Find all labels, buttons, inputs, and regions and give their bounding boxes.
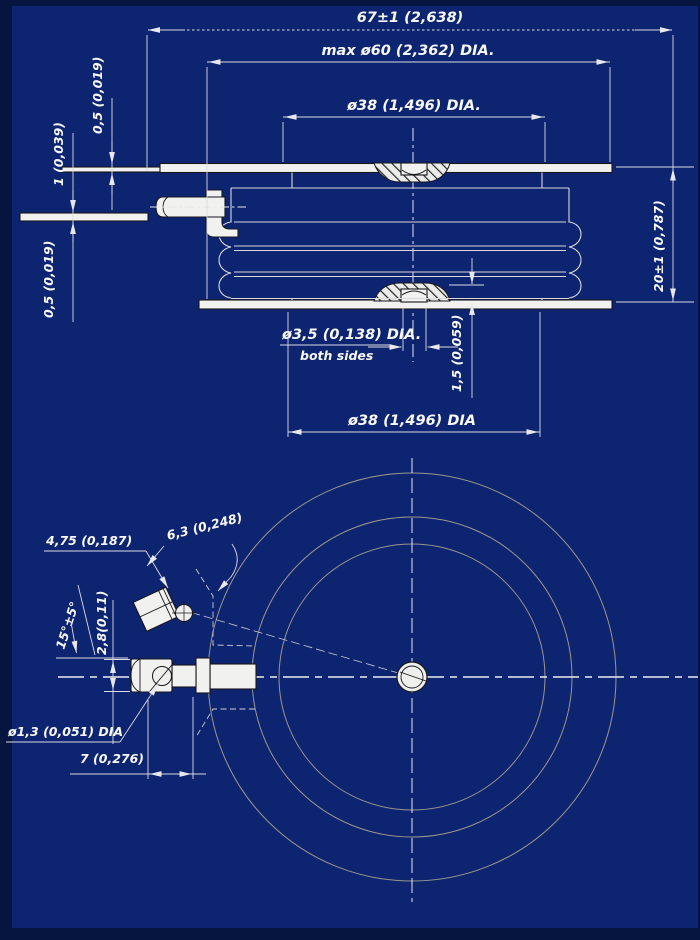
dim-lower-sheet-thickness-label: 0,5 (0,019) <box>41 241 56 318</box>
dim-upper-sheet-thickness: 0,5 (0,019) <box>90 57 112 210</box>
dim-gate-angle-label: 15°±5° <box>53 600 82 651</box>
dim-recess-depth-label: 1,5 (0,059) <box>449 315 464 392</box>
dim-lug-width-label: 2,8(0,11) <box>94 591 109 655</box>
dim-gate-pad-length: 4,75 (0,187) <box>44 533 168 588</box>
technical-drawing: 67±1 (2,638) max ø60 (2,362) DIA. ø38 (1… <box>0 0 700 940</box>
gate-lead-lug <box>131 658 256 693</box>
dim-hole-to-edge-label: 7 (0,276) <box>80 751 144 766</box>
dim-upper-pole-diameter-label: ø38 (1,496) DIA. <box>346 98 481 114</box>
gate-terminal-assembly <box>20 190 246 237</box>
gate-contact-pad <box>133 587 179 631</box>
dim-lead-hole-diameter: ø1,3 (0,051) DIA <box>6 684 158 742</box>
dim-recess-depth: 1,5 (0,059) <box>449 258 484 398</box>
lug-shaft <box>172 665 196 687</box>
dim-center-recess: ø3,5 (0,138) DIA. both sides <box>280 307 458 363</box>
dim-center-recess-label: ø3,5 (0,138) DIA. <box>281 327 421 343</box>
dim-lead-hole-diameter-label: ø1,3 (0,051) DIA <box>7 724 123 739</box>
dim-overall-width-label: 67±1 (2,638) <box>357 10 464 26</box>
dim-gate-angle: 15°±5° <box>53 585 128 658</box>
dim-body-height-label: 20±1 (0,787) <box>651 200 666 292</box>
dim-gate-pad-width-label: 6,3 (0,248) <box>165 510 244 543</box>
hidden-notch-lower-edge <box>196 709 255 737</box>
ceramic-bellows-housing <box>219 173 581 301</box>
dim-overall-width: 67±1 (2,638) <box>147 10 673 171</box>
dim-gate-pad-width: 6,3 (0,248) <box>147 510 244 591</box>
blueprint-page: 67±1 (2,638) max ø60 (2,362) DIA. ø38 (1… <box>0 0 700 940</box>
dim-center-recess-note: both sides <box>300 348 373 363</box>
lug-step <box>210 664 256 689</box>
plan-view: 4,75 (0,187) 6,3 (0,248) 15°±5° 2,8(0,11… <box>6 458 698 902</box>
dim-upper-pole-diameter: ø38 (1,496) DIA. <box>283 98 545 162</box>
lug-flange <box>196 658 210 693</box>
dim-lower-pole-diameter-label: ø38 (1,496) DIA <box>347 413 476 429</box>
dim-lug-width: 2,8(0,11) <box>94 591 130 744</box>
dim-lower-sheet-thickness: 0,5 (0,019) <box>41 241 73 322</box>
side-view: 67±1 (2,638) max ø60 (2,362) DIA. ø38 (1… <box>20 10 694 437</box>
dim-body-height: 20±1 (0,787) <box>616 167 694 302</box>
dim-lead-strip-thickness-label: 1 (0,039) <box>51 122 66 186</box>
hidden-notch-upper-edge <box>196 569 255 646</box>
gate-lead-strip <box>20 213 148 221</box>
dim-gate-pad-length-label: 4,75 (0,187) <box>45 533 132 548</box>
center-hole-outer <box>397 662 427 692</box>
dim-lead-strip-thickness: 1 (0,039) <box>51 122 73 246</box>
dim-upper-sheet-thickness-label: 0,5 (0,019) <box>90 57 105 134</box>
upper-center-recess <box>401 163 427 175</box>
dim-max-diameter-label: max ø60 (2,362) DIA. <box>321 43 494 59</box>
